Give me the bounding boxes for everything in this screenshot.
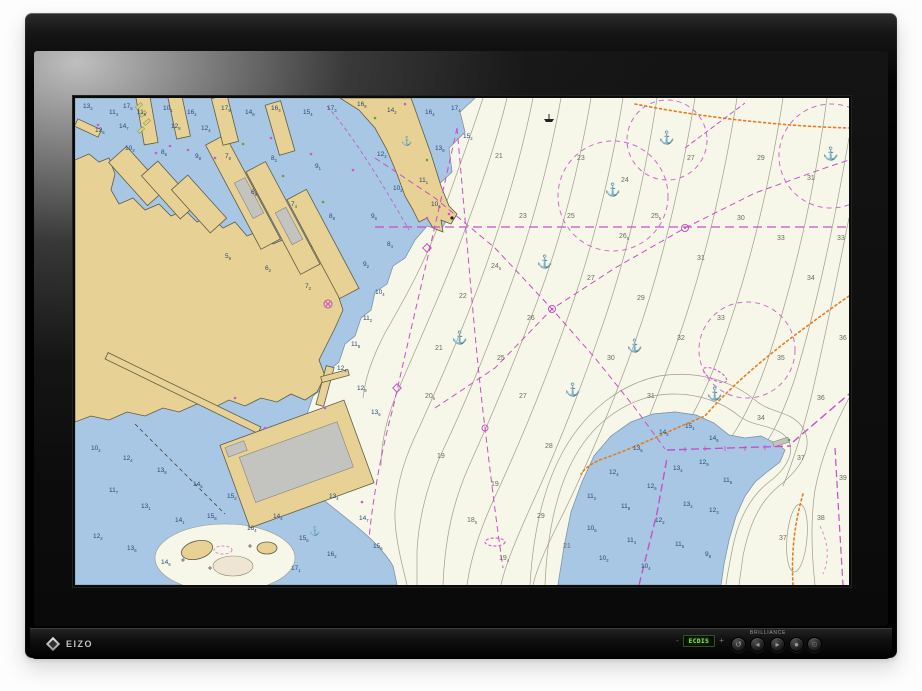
svg-text:33: 33 [837,235,845,242]
islet [257,542,277,554]
svg-text:36: 36 [839,335,847,342]
svg-text:33: 33 [777,235,785,242]
beacon [450,216,453,219]
brilliance-up-button[interactable]: ▸ [770,637,785,652]
svg-text:⚓: ⚓ [605,182,621,197]
svg-text:27: 27 [519,393,527,400]
svg-text:27: 27 [687,155,695,162]
control-strip: EIZO - ECDIS + BRILLIANCE ↺◂▸●⊙ [30,628,892,659]
svg-text:⚓: ⚓ [565,382,581,397]
svg-text:21: 21 [495,153,503,160]
power-button[interactable]: ⊙ [807,637,822,652]
svg-text:21: 21 [435,345,443,352]
svg-text:39: 39 [839,475,847,482]
svg-text:⚓: ⚓ [707,386,723,401]
svg-text:29: 29 [537,513,545,520]
svg-text:⚓: ⚓ [401,135,412,146]
screen: ⚓⚓⚓⚓⚓⚓⚓⚓⚓⚓ 13211412617511914710116212812… [73,96,851,587]
svg-text:⚓: ⚓ [659,130,675,145]
svg-text:38: 38 [817,515,825,522]
svg-text:23: 23 [577,155,585,162]
svg-text:23: 23 [519,213,527,220]
minus-label: - [676,637,679,645]
svg-text:31: 31 [807,175,815,182]
svg-text:⚓: ⚓ [537,254,553,269]
enter-button[interactable]: ● [789,637,804,652]
svg-text:19: 19 [437,453,445,460]
svg-text:34: 34 [807,275,815,282]
eizo-logo: EIZO [48,637,93,651]
svg-text:28: 28 [545,443,553,450]
svg-text:19: 19 [491,481,499,488]
brand-label: EIZO [66,639,93,649]
brilliance-label: BRILLIANCE [740,630,796,636]
svg-text:24: 24 [621,177,629,184]
return-button[interactable]: ↺ [731,637,746,652]
svg-text:⚓: ⚓ [823,146,839,161]
svg-text:36: 36 [817,395,825,402]
nautical-chart: ⚓⚓⚓⚓⚓⚓⚓⚓⚓⚓ 13211412617511914710116212812… [75,98,849,585]
svg-text:30: 30 [607,355,615,362]
islet [213,556,253,576]
svg-text:21: 21 [563,543,571,550]
mode-display: ECDIS [683,635,716,647]
svg-text:29: 29 [637,295,645,302]
svg-text:⚓: ⚓ [309,525,320,536]
monitor-frame: ⚓⚓⚓⚓⚓⚓⚓⚓⚓⚓ 13211412617511914710116212812… [25,13,897,658]
svg-text:32: 32 [677,335,685,342]
svg-text:⚓: ⚓ [452,330,468,345]
svg-text:30: 30 [737,215,745,222]
svg-text:25: 25 [497,355,505,362]
svg-text:35: 35 [777,355,785,362]
mode-display-group: - ECDIS + [676,635,724,647]
plus-label: + [719,637,724,645]
svg-text:37: 37 [797,455,805,462]
svg-text:⚓: ⚓ [627,338,643,353]
svg-text:25: 25 [567,213,575,220]
svg-text:31: 31 [697,255,705,262]
svg-text:22: 22 [459,293,467,300]
svg-text:29: 29 [757,155,765,162]
svg-text:31: 31 [647,393,655,400]
svg-text:33: 33 [717,315,725,322]
brilliance-down-button[interactable]: ◂ [750,637,765,652]
svg-text:27: 27 [587,275,595,282]
eizo-logo-icon [46,637,60,651]
svg-text:26: 26 [527,315,535,322]
svg-text:34: 34 [757,415,765,422]
svg-text:37: 37 [779,535,787,542]
